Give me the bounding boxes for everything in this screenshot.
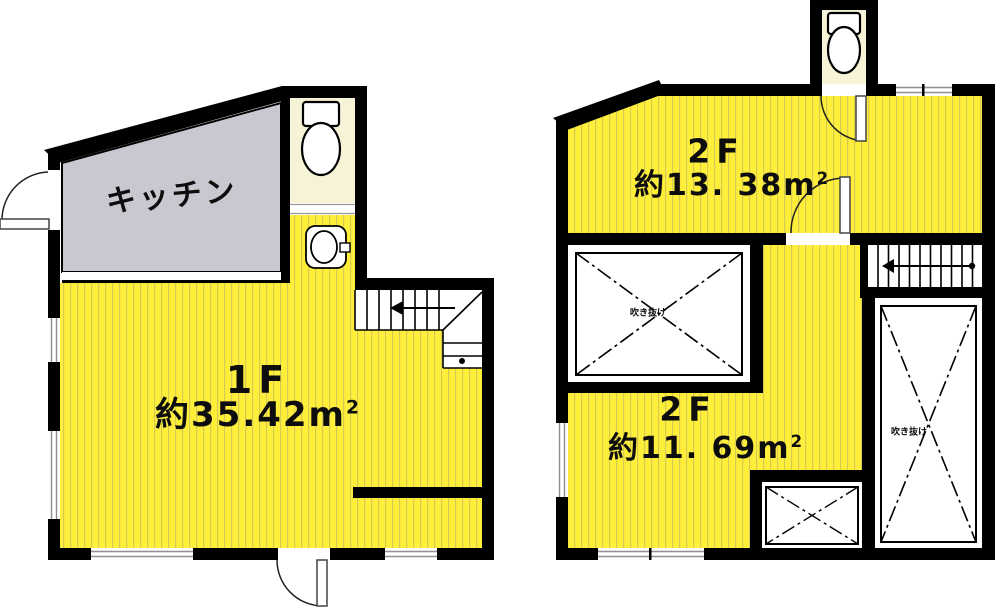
- floor1-room-floor-label: 1F: [226, 361, 290, 399]
- door-1f-bottom: [277, 548, 330, 606]
- floor1-room-area-label: 約35.42m2: [155, 398, 361, 432]
- floor2-lower-floor-label: 2F: [659, 393, 717, 426]
- floor2-upper-area-unit: m: [783, 168, 816, 203]
- floor2-lower-area-label: 約11. 69m2: [608, 434, 804, 464]
- door-arc-1f-left: [2, 172, 48, 220]
- door-arc-1f-bottom: [277, 560, 322, 606]
- window-1f-left-upper: [48, 315, 60, 365]
- window-2f-top: [893, 84, 955, 96]
- toilet-icon-1f: [302, 102, 340, 175]
- window-2f-bottom: [595, 548, 707, 560]
- void-left-label: 吹き抜け: [630, 310, 666, 319]
- floor2-upper-area-unit-sup: 2: [817, 169, 830, 188]
- floor2-upper-area-label: 約13. 38m2: [634, 171, 830, 201]
- window-1f-bottom-right: [382, 548, 440, 560]
- floor1-area-unit: m: [309, 395, 346, 435]
- floor2-lower-area-value: 約11. 69: [608, 431, 757, 466]
- floorplan-drawing: [0, 0, 1000, 609]
- staircase-2f: [868, 245, 982, 287]
- floor2-lower-area-unit: m: [757, 431, 790, 466]
- void-right-label: 吹き抜け: [891, 429, 927, 438]
- door-1f-left: [0, 170, 60, 230]
- window-2f-left: [556, 420, 568, 500]
- floor1-plan: [0, 86, 494, 606]
- floor2-upper-area-value: 約13. 38: [634, 168, 783, 203]
- floor1-area-unit-sup: 2: [346, 398, 361, 419]
- floor2-lower-area-unit-sup: 2: [791, 432, 804, 451]
- toilet-door-1f: [290, 203, 355, 215]
- floorplan-page: キッチン 1F 約35.42m2 2F 約13. 38m2 2F 約11. 69…: [0, 0, 1000, 609]
- partition-wall-1f: [353, 487, 482, 498]
- floor2-upper-floor-label: 2F: [687, 135, 745, 168]
- floor1-area-value: 約35.42: [155, 395, 309, 435]
- void-right-box: [881, 306, 976, 542]
- sink-icon-1f: [306, 226, 350, 268]
- window-1f-bottom-left: [88, 548, 196, 560]
- window-1f-left-lower: [48, 428, 60, 522]
- void-small-box: [766, 487, 858, 544]
- floor2-plan: [553, 0, 995, 560]
- toilet-icon-2f: [828, 13, 860, 73]
